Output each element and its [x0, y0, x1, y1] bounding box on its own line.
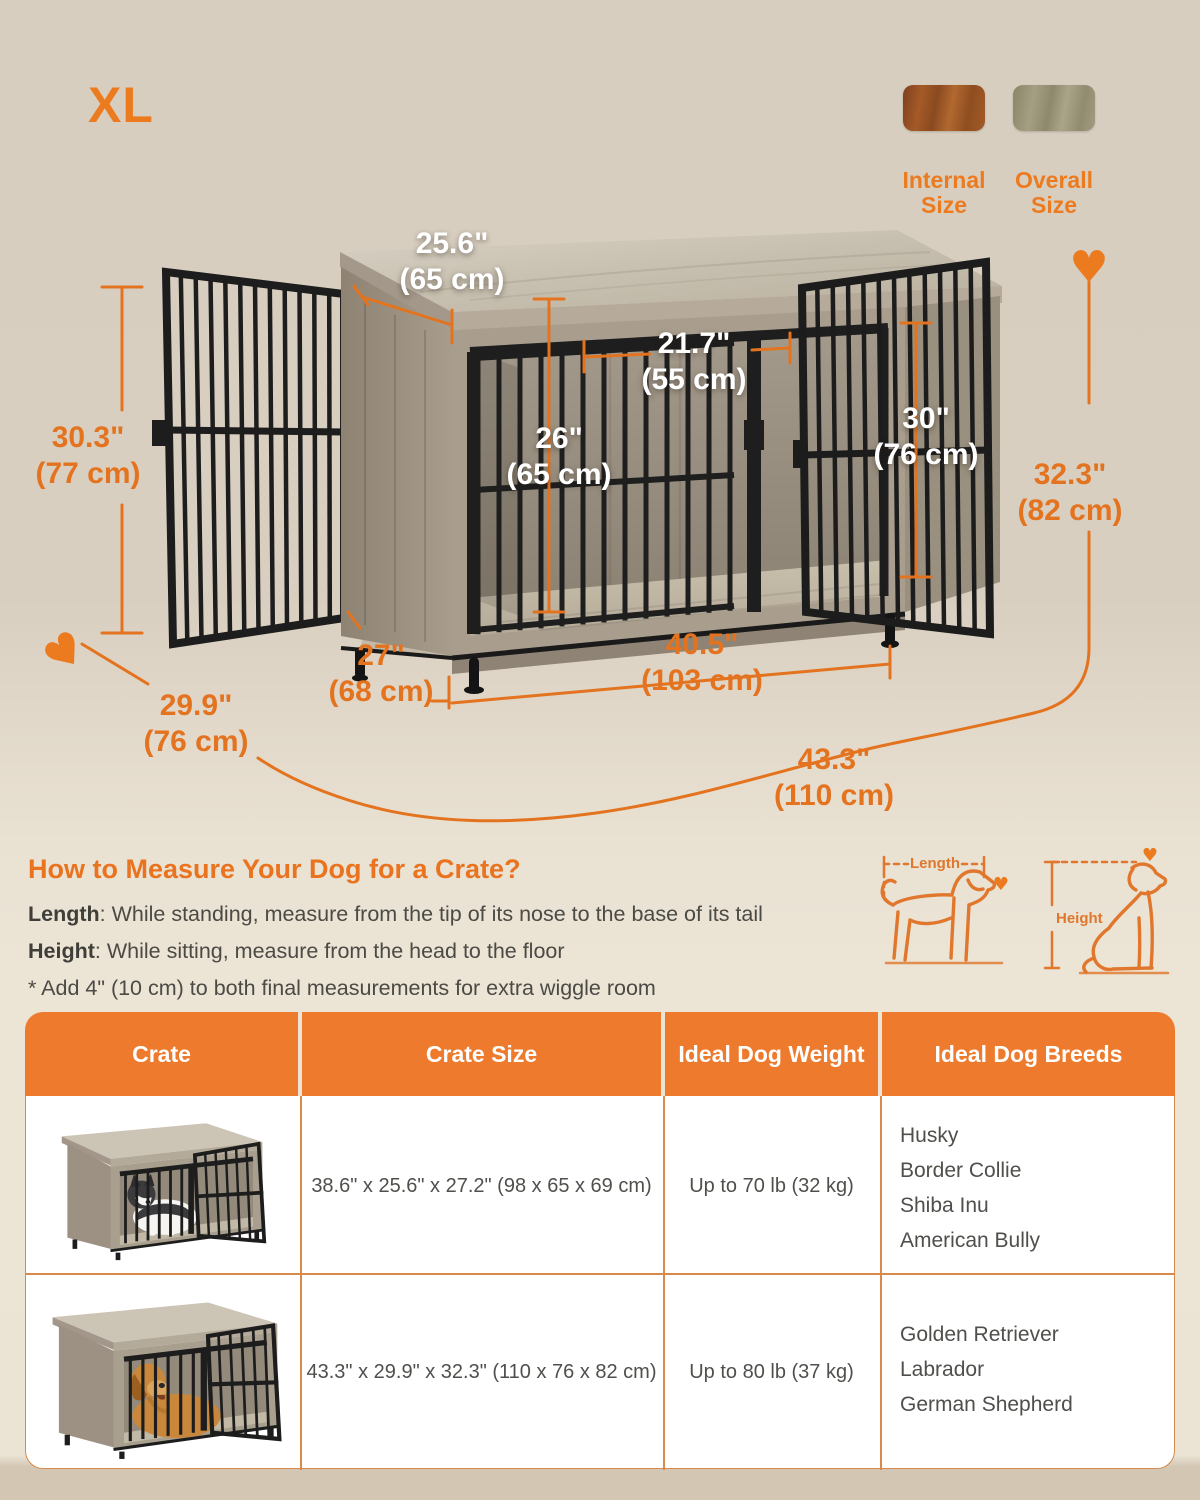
overall-depth-heart-icon: ♥	[34, 620, 96, 684]
dimension-label-overall-width: 43.3"(110 cm)	[724, 742, 944, 814]
length-heart-icon: ♥	[993, 874, 1009, 895]
row2-weight: Up to 80 lb (37 kg)	[665, 1275, 878, 1468]
dimension-label-top-depth: 25.6"(65 cm)	[342, 226, 562, 298]
infographic-page: XL Internal Size Overall Size	[0, 0, 1200, 1500]
table-divider	[300, 1096, 302, 1470]
measure-section-title: How to Measure Your Dog for a Crate?	[28, 854, 521, 885]
measure-height-line: Height: While sitting, measure from the …	[28, 939, 565, 964]
measure-length-line: Length: While standing, measure from the…	[28, 902, 763, 927]
table-header-crate-size: Crate Size	[302, 1012, 661, 1096]
table-row-divider	[25, 1273, 1175, 1275]
dimension-label-left-height: 30.3"(77 cm)	[0, 420, 198, 492]
dimension-label-inner-width: 40.5"(103 cm)	[592, 627, 812, 699]
row1-breeds: Husky Border Collie Shiba Inu American B…	[900, 1118, 1040, 1258]
table-header-ideal-dog-weight: Ideal Dog Weight	[665, 1012, 878, 1096]
row2-crate-size: 43.3" x 29.9" x 32.3" (110 x 76 x 82 cm)	[302, 1275, 661, 1468]
overall-size-heart-icon: ♥	[1069, 242, 1108, 293]
dimension-label-door-width: 21.7"(55 cm)	[584, 326, 804, 398]
dimension-label-overall-height: 32.3"(82 cm)	[960, 457, 1180, 529]
dimension-label-inner-height: 26"(65 cm)	[449, 421, 669, 493]
table-divider	[663, 1096, 665, 1470]
diagram-length-label: Length	[895, 855, 975, 872]
table-header-row: Crate Crate Size Ideal Dog Weight Ideal …	[25, 1012, 1175, 1096]
standing-dog-outline	[882, 871, 994, 960]
table-header-ideal-dog-breeds: Ideal Dog Breeds	[882, 1012, 1175, 1096]
row1-crate-size: 38.6" x 25.6" x 27.2" (98 x 65 x 69 cm)	[302, 1098, 661, 1273]
table-header-crate: Crate	[25, 1012, 298, 1096]
row1-crate-photo	[48, 1112, 278, 1262]
row1-weight: Up to 70 lb (32 kg)	[665, 1098, 878, 1273]
dimension-label-overall-depth: 29.9"(76 cm)	[86, 688, 306, 760]
table-divider	[880, 1096, 882, 1470]
measure-note-line: * Add 4" (10 cm) to both final measureme…	[28, 976, 656, 1001]
diagram-height-label: Height	[1056, 910, 1103, 927]
row2-crate-photo	[36, 1292, 296, 1460]
height-heart-icon: ♥	[1142, 845, 1158, 866]
row2-breeds: Golden Retriever Labrador German Shepher…	[900, 1317, 1073, 1422]
